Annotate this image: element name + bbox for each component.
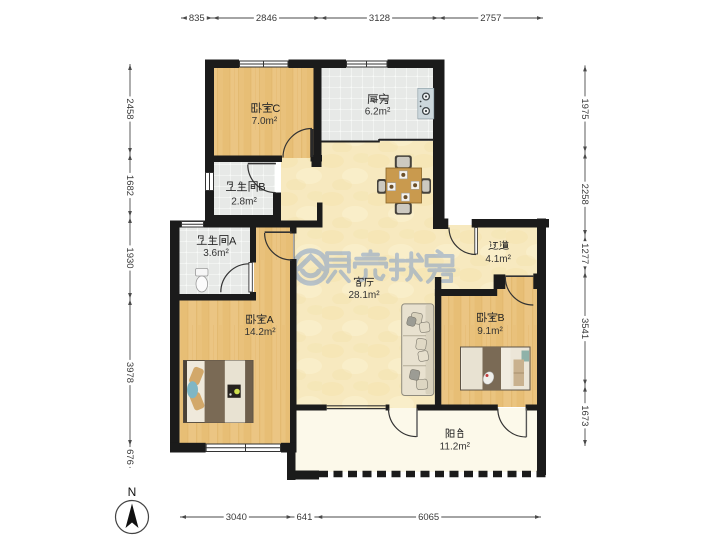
svg-text:A: A [267,314,274,326]
svg-text:28.1m²: 28.1m² [348,290,380,301]
svg-text:676: 676 [124,449,135,465]
svg-text:641: 641 [297,512,313,523]
svg-text:6065: 6065 [418,512,439,523]
svg-text:6.2m²: 6.2m² [365,107,391,118]
svg-text:1277: 1277 [579,243,590,264]
svg-text:2757: 2757 [480,13,501,24]
svg-text:1673: 1673 [579,405,590,426]
svg-text:7.0m²: 7.0m² [252,116,278,127]
svg-text:3541: 3541 [579,318,590,339]
svg-text:1975: 1975 [579,98,590,119]
svg-text:A: A [229,235,237,247]
svg-text:4.1m²: 4.1m² [485,254,511,265]
svg-text:3978: 3978 [124,362,135,383]
svg-text:11.2m²: 11.2m² [440,442,471,453]
svg-text:N: N [128,485,137,499]
svg-text:835: 835 [189,13,205,24]
svg-text:2258: 2258 [579,184,590,205]
svg-text:3.6m²: 3.6m² [203,248,229,259]
svg-text:14.2m²: 14.2m² [244,327,276,338]
svg-text:2.8m²: 2.8m² [231,197,257,208]
svg-text:3040: 3040 [226,512,247,523]
svg-text:9.1m²: 9.1m² [477,326,503,337]
svg-text:B: B [497,312,504,324]
svg-text:B: B [258,181,265,193]
svg-text:C: C [272,103,280,115]
svg-text:3128: 3128 [369,13,390,24]
svg-text:2846: 2846 [256,13,277,24]
svg-text:2458: 2458 [124,98,135,119]
svg-text:1682: 1682 [124,175,135,196]
svg-text:1930: 1930 [124,247,135,268]
